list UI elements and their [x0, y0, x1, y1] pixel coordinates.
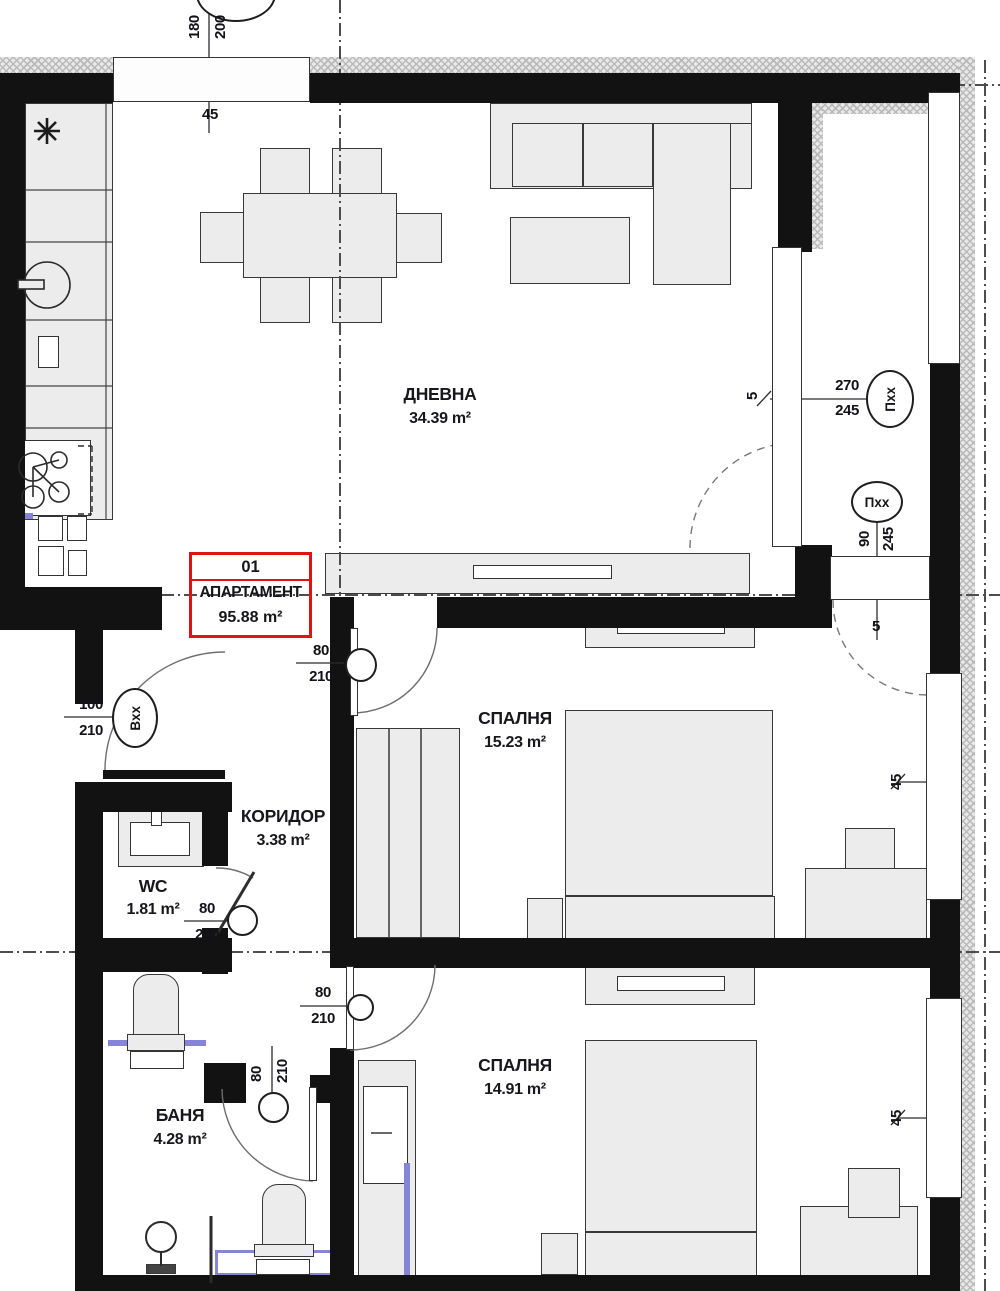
- window-terrace-bottom: [830, 556, 930, 600]
- room-label-bedroom2: СПАЛНЯ: [455, 1055, 575, 1076]
- room-area-bedroom1: 15.23 m²: [455, 734, 575, 752]
- apartment-area: 95.88 m²: [192, 605, 309, 631]
- window-axis-lines: [113, 80, 944, 1196]
- fridge-icon: [34, 118, 60, 144]
- dim-right-window2-offset: 45: [888, 1100, 905, 1136]
- door-tag-circle: [345, 648, 377, 682]
- apartment-label: АПАРТАМЕНТ: [192, 581, 309, 605]
- dim-terrace-window-width: 90: [856, 522, 873, 556]
- opening-tag-circle: Вхх: [112, 688, 158, 748]
- window-terrace-right: [928, 92, 960, 364]
- dim-wc-door-width: 80: [186, 900, 228, 917]
- stove-icon: [19, 446, 92, 514]
- door-swing-arc-dashed: [833, 600, 928, 695]
- door-tag-circle: [227, 905, 258, 936]
- wardrobe-dividers: [371, 728, 421, 1133]
- window-bedroom1: [926, 673, 962, 900]
- window-top: [113, 57, 310, 102]
- dim-bath-door-width: 80: [248, 1056, 265, 1092]
- room-area-living: 34.39 m²: [385, 410, 495, 428]
- dim-bedroom1-door-height: 210: [297, 668, 345, 685]
- room-label-bedroom1: СПАЛНЯ: [455, 708, 575, 729]
- dim-terrace-door-offset: 5: [744, 382, 761, 410]
- dim-bedroom1-door-width: 80: [300, 642, 342, 659]
- room-label-bath: БАНЯ: [130, 1105, 230, 1126]
- opening-tag-circle: Пхх: [866, 370, 914, 428]
- door-tag-circle: [258, 1092, 289, 1123]
- floor-plan: Пхх Пхх Вхх ДНЕВНА 34.39 m² СПАЛНЯ 15.23…: [0, 0, 1000, 1291]
- shower-icon: [146, 1222, 176, 1266]
- dim-terrace-door-height: 245: [826, 402, 868, 419]
- window-bedroom2: [926, 998, 962, 1198]
- room-label-living: ДНЕВНА: [385, 384, 495, 405]
- dim-entrance-width: 100: [68, 696, 114, 713]
- dim-bath-door-height: 210: [274, 1048, 291, 1094]
- room-area-corridor: 3.38 m²: [227, 832, 339, 850]
- opening-tag-text: Пхх: [865, 495, 890, 510]
- opening-tag-text: Вхх: [128, 706, 143, 731]
- dim-right-window1-offset: 45: [888, 764, 905, 800]
- door-tag-circle: [347, 994, 374, 1021]
- dim-bedroom2-door-width: 80: [302, 984, 344, 1001]
- room-label-corridor: КОРИДОР: [227, 806, 339, 827]
- dim-terrace-window-height: 245: [880, 516, 897, 562]
- dim-top-window-offset: 45: [190, 106, 230, 123]
- dim-entrance-height: 210: [68, 722, 114, 739]
- kitchen-counter-lines: [25, 103, 113, 520]
- entrance-door-leaf: [103, 770, 225, 779]
- dim-wc-door-height: 210: [184, 926, 230, 943]
- sink-icon: [18, 262, 70, 308]
- apartment-number: 01: [192, 555, 309, 581]
- door-swing-arc: [216, 868, 253, 878]
- window-terrace-door: [772, 247, 802, 547]
- door-leaf: [309, 1087, 317, 1181]
- room-area-bedroom2: 14.91 m²: [455, 1081, 575, 1099]
- dim-top-window-width: 180: [186, 6, 203, 48]
- dim-top-window-height: 200: [212, 6, 229, 48]
- room-area-bath: 4.28 m²: [126, 1131, 234, 1149]
- dim-terrace-door-width: 270: [826, 377, 868, 394]
- room-label-wc: WC: [118, 876, 188, 897]
- dim-terrace-window-offset: 5: [864, 618, 888, 635]
- dim-bedroom2-door-height: 210: [300, 1010, 346, 1027]
- opening-tag-text: Пхх: [883, 387, 898, 412]
- apartment-tag-box[interactable]: 01 АПАРТАМЕНТ 95.88 m²: [189, 552, 312, 638]
